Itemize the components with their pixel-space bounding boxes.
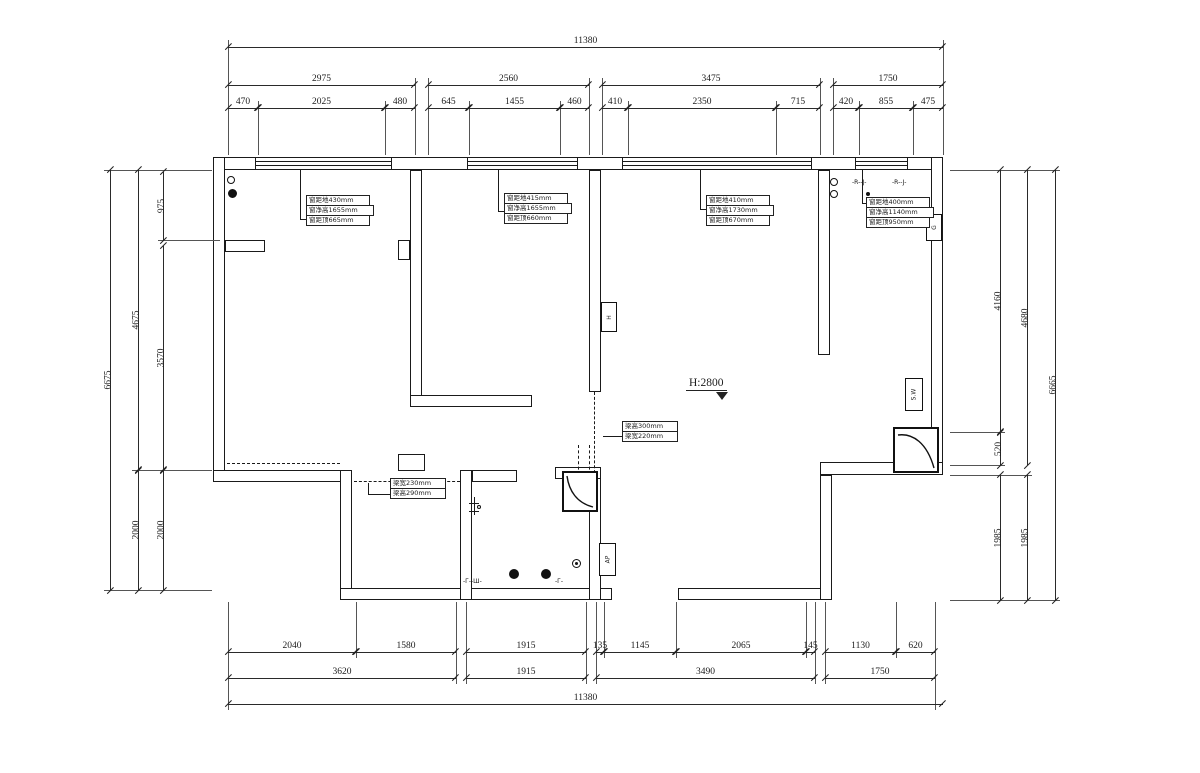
dim-top: 2350 <box>628 108 776 109</box>
dim-bottom: 1130 <box>825 652 896 653</box>
dim-right: 4680 <box>1027 170 1028 465</box>
ext-line <box>428 78 429 155</box>
wall-box-h-label: H <box>605 315 612 320</box>
wall-bottom-right-run <box>678 588 832 600</box>
mark-drain1: -Г--Ш- <box>463 578 482 585</box>
dim-right: 4160 <box>1000 170 1001 432</box>
dim-value: 1915 <box>517 667 536 677</box>
wall-notch-smallroom <box>398 454 425 471</box>
dim-top: 475 <box>913 108 943 109</box>
dim-left: 4675 <box>138 170 139 470</box>
ext-line <box>589 78 590 155</box>
ext-line <box>385 101 386 155</box>
leader-beam1 <box>603 436 622 437</box>
ext-line <box>950 465 1005 466</box>
ext-line <box>776 101 777 155</box>
dim-value: 2000 <box>131 521 141 540</box>
dashed-beam-left <box>227 463 340 464</box>
dim-value: 2065 <box>732 641 751 651</box>
ext-line <box>469 101 470 155</box>
window-bed2 <box>467 157 578 170</box>
symbol-circle-bed3-open2 <box>830 190 838 198</box>
dim-left-total: 6675 <box>110 170 111 590</box>
flue-shaft-bed3 <box>893 427 939 473</box>
dim-right: 520 <box>1000 432 1001 465</box>
window2-label: 窗距地415mm 窗净高1655mm 窗距顶660mm <box>504 194 572 224</box>
wall-lowerright-vertical <box>820 475 832 600</box>
ext-line <box>950 170 1060 171</box>
dim-value: 1750 <box>871 667 890 677</box>
beam1-label: 梁高300mm 梁宽220mm <box>622 422 678 442</box>
mark-drain2: -Г- <box>555 578 563 585</box>
symbol-circle-bed1-filled <box>228 189 237 198</box>
water-point-tick1 <box>469 503 479 504</box>
leader-window3 <box>700 170 701 210</box>
dim-value: 410 <box>608 97 622 107</box>
dim-value: 1580 <box>397 641 416 651</box>
water-point-tick2 <box>469 511 479 512</box>
beam2-height: 梁高290mm <box>390 488 446 499</box>
dashed-opening-corridor <box>594 392 595 478</box>
dim-top: 470 <box>228 108 258 109</box>
dim-value: 975 <box>157 199 167 213</box>
symbol-circle-bed3-open1 <box>830 178 838 186</box>
mark-rj2: -R--J- <box>892 179 906 186</box>
dim-value: 3475 <box>702 74 721 84</box>
dim-top: 645 <box>428 108 469 109</box>
window1-label: 窗距地430mm 窗净高1655mm 窗距顶665mm <box>306 196 374 226</box>
dim-value: 1750 <box>879 74 898 84</box>
dim-bottom: 1580 <box>356 652 456 653</box>
water-point-circle <box>477 505 481 509</box>
ceiling-height-label: H:2800 <box>686 377 727 391</box>
beam2-label: 梁宽230mm 梁高290mm <box>390 479 446 499</box>
wall-bed2-bottom <box>410 395 532 407</box>
dim-value: 1985 <box>1020 528 1030 547</box>
ext-line <box>628 101 629 155</box>
ext-line <box>466 602 467 684</box>
dim-value: 855 <box>879 97 893 107</box>
window4-head: 窗距顶950mm <box>866 217 930 228</box>
dim-bottom: 1750 <box>825 678 935 679</box>
wall-corridor-upper <box>589 170 601 392</box>
dim-left: 3570 <box>163 246 164 470</box>
window2-head: 窗距顶660mm <box>504 213 568 224</box>
dim-right: 1985 <box>1027 475 1028 600</box>
window3-head: 窗距顶670mm <box>706 215 770 226</box>
ext-line <box>415 78 416 155</box>
wall-box-sw: S.W <box>905 378 923 411</box>
dim-bottom: 2040 <box>228 652 356 653</box>
wall-box-ap: AP <box>599 543 616 576</box>
dim-value: 6665 <box>1048 376 1058 395</box>
dim-left: 2000 <box>163 470 164 590</box>
window3-label: 窗距地410mm 窗净高1730mm 窗距顶670mm <box>706 196 774 226</box>
dim-left: 975 <box>163 172 164 240</box>
dim-bottom: 1915 <box>466 678 586 679</box>
dim-top-total: 11380 <box>228 47 943 48</box>
dim-bottom: 620 <box>896 652 935 653</box>
flue-shaft-bath <box>562 471 598 512</box>
dim-top: 410 <box>602 108 628 109</box>
dim-top: 2025 <box>258 108 385 109</box>
dim-bottom-total: 11380 <box>228 704 943 705</box>
dim-value: 475 <box>921 97 935 107</box>
dim-value: 1915 <box>517 641 536 651</box>
ext-line <box>132 470 212 471</box>
dim-value: 1455 <box>505 97 524 107</box>
dim-top: 715 <box>776 108 820 109</box>
ext-line <box>950 600 1060 601</box>
wall-box-sw-label: S.W <box>911 389 918 401</box>
dim-bottom: 1145 <box>604 652 676 653</box>
dim-bottom: 3620 <box>228 678 456 679</box>
dim-value: 11380 <box>574 36 597 46</box>
ext-line <box>258 101 259 155</box>
wall-lowerleft-vertical <box>340 470 352 600</box>
dim-value: 1130 <box>851 641 870 651</box>
dim-top: 3475 <box>602 85 820 86</box>
dim-top: 855 <box>859 108 913 109</box>
dim-left: 2000 <box>138 470 139 590</box>
window-bed3 <box>855 157 908 170</box>
level-triangle-icon <box>716 392 728 400</box>
ext-line <box>825 602 826 684</box>
floor-drain-open-center <box>575 562 578 565</box>
wall-bottomleft-horizontal <box>213 470 352 482</box>
ext-line <box>913 101 914 155</box>
ext-line <box>833 78 834 155</box>
dim-value: 2350 <box>693 97 712 107</box>
dim-right: 1985 <box>1000 475 1001 600</box>
wall-living-bed3 <box>818 170 830 355</box>
dim-value: 645 <box>441 97 455 107</box>
symbol-circle-bed1-open <box>227 176 235 184</box>
window-living <box>622 157 812 170</box>
ext-line <box>820 78 821 155</box>
ext-line <box>950 475 1032 476</box>
dim-bottom: 2065 <box>676 652 806 653</box>
dim-value: 6675 <box>103 371 113 390</box>
dim-value: 2040 <box>283 641 302 651</box>
floor-drain-1 <box>509 569 519 579</box>
dim-bottom: 3490 <box>596 678 815 679</box>
dim-value: 480 <box>393 97 407 107</box>
ext-line <box>943 40 944 155</box>
ext-line <box>456 602 457 684</box>
dim-top: 1750 <box>833 85 943 86</box>
ext-line <box>228 602 229 710</box>
dim-bottom: 145 <box>806 652 815 653</box>
ext-line <box>104 590 212 591</box>
dim-value: 470 <box>236 97 250 107</box>
dim-right-total: 6665 <box>1055 170 1056 600</box>
leader-window2 <box>498 170 499 212</box>
wall-stub-bed1 <box>225 240 265 252</box>
ext-line <box>560 101 561 155</box>
dim-value: 3570 <box>156 349 166 368</box>
dim-top: 2975 <box>228 85 415 86</box>
dim-top: 2560 <box>428 85 589 86</box>
dim-value: 2975 <box>312 74 331 84</box>
ext-line <box>228 40 229 155</box>
dim-value: 2025 <box>312 97 331 107</box>
dim-value: 4680 <box>1020 308 1030 327</box>
wall-stub-bed2 <box>398 240 410 260</box>
wall-box-ap-label: AP <box>604 556 611 564</box>
dim-value: 520 <box>994 441 1004 455</box>
dim-value: 1985 <box>993 528 1003 547</box>
dim-value: 620 <box>908 641 922 651</box>
dim-value: 4160 <box>993 292 1003 311</box>
ext-line <box>602 78 603 155</box>
dim-value: 11380 <box>574 693 597 703</box>
dim-value: 4675 <box>131 311 141 330</box>
dim-top: 460 <box>560 108 589 109</box>
dim-value: 145 <box>803 641 817 651</box>
floor-plan-canvas: H AP S.W G H:2800 窗距地430mm 窗净高1655mm 窗距顶… <box>0 0 1200 773</box>
water-point-stem <box>474 497 475 515</box>
ext-line <box>586 602 587 684</box>
dim-value: 420 <box>839 97 853 107</box>
dim-value: 3620 <box>333 667 352 677</box>
dim-top: 1455 <box>469 108 560 109</box>
ext-line <box>158 240 220 241</box>
wall-left <box>213 157 225 482</box>
dim-top: 420 <box>833 108 859 109</box>
dim-value: 1145 <box>631 641 650 651</box>
dim-value: 460 <box>567 97 581 107</box>
wall-box-h: H <box>601 302 617 332</box>
mark-rj-dot <box>866 192 870 196</box>
ext-line <box>935 602 936 710</box>
ext-line <box>104 170 212 171</box>
dim-bottom: 1915 <box>466 652 586 653</box>
window4-label: 窗距地400mm 窗净高1140mm 窗距顶950mm <box>866 198 934 228</box>
dim-value: 2560 <box>499 74 518 84</box>
window1-head: 窗距顶665mm <box>306 215 370 226</box>
leader-beam2-h <box>368 494 390 495</box>
leader-window4 <box>862 170 863 204</box>
beam1-width: 梁宽220mm <box>622 431 678 442</box>
mark-rj1: -R--J- <box>852 179 866 186</box>
leader-window1 <box>300 170 301 220</box>
dim-value: 2000 <box>156 521 166 540</box>
dim-top: 480 <box>385 108 415 109</box>
dim-value: 715 <box>791 97 805 107</box>
wall-bath-top-a <box>472 470 517 482</box>
dim-value: 3490 <box>696 667 715 677</box>
wall-bed1-bed2 <box>410 170 422 407</box>
wall-bottom-left-run <box>340 588 612 600</box>
window-bed1 <box>255 157 392 170</box>
ext-line <box>859 101 860 155</box>
floor-drain-2 <box>541 569 551 579</box>
